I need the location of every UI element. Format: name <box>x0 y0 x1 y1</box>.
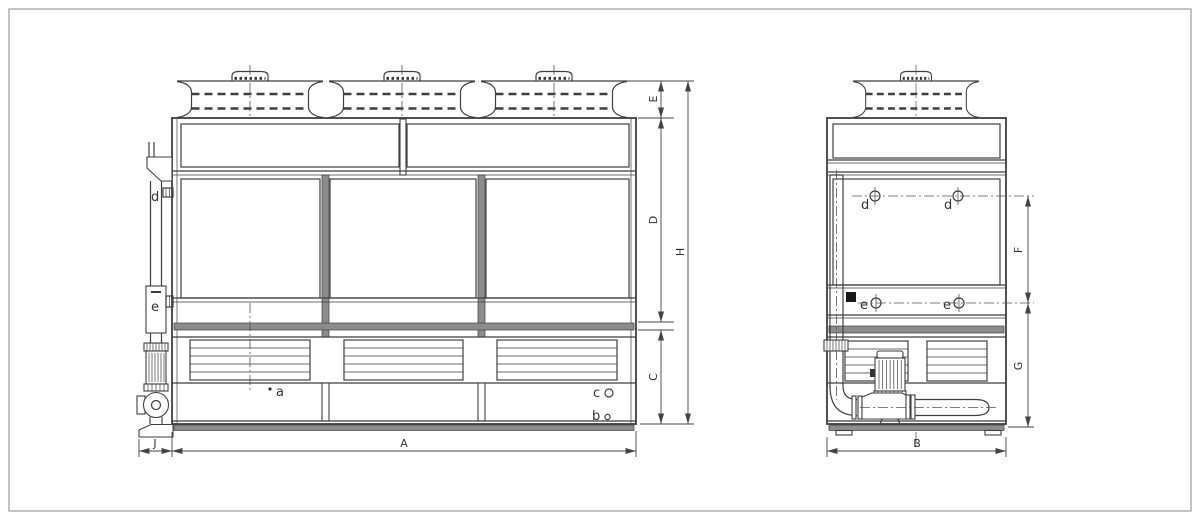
side-connection-d-right-label: d <box>944 198 952 213</box>
dim-label-J: J <box>152 437 156 450</box>
front-connection-d-label: d <box>151 190 159 205</box>
side-connection-d-left-label: d <box>861 198 869 213</box>
dim-label-G: G <box>1012 362 1025 371</box>
front-connection-e-label: e <box>151 300 159 315</box>
dim-label-C: C <box>647 373 660 381</box>
dim-label-D: D <box>647 216 660 224</box>
front-casing <box>172 118 636 424</box>
dim-label-B: B <box>913 437 921 450</box>
front-connection-c-label: c <box>593 386 600 401</box>
base-foot-right <box>985 431 1001 436</box>
front-connection-a-label: a <box>276 385 284 400</box>
base-foot-left <box>836 431 852 436</box>
port-a-mark <box>268 387 271 390</box>
side-connection-e-left-label: e <box>860 298 868 313</box>
pump-volute <box>144 393 169 418</box>
dim-label-H: H <box>674 248 687 256</box>
pump-motor-cap <box>877 351 903 358</box>
dim-label-F: F <box>1012 247 1025 253</box>
dim-label-A: A <box>400 437 408 450</box>
technical-drawing-canvas: a c b d e <box>0 0 1200 520</box>
control-box <box>846 292 856 302</box>
side-view: d d e e <box>824 65 1034 457</box>
side-casing <box>827 118 1006 424</box>
side-connection-e-right-label: e <box>943 298 951 313</box>
pump-volute <box>862 393 910 419</box>
front-view: a c b d e <box>137 65 694 457</box>
front-connection-b-label: b <box>592 409 600 424</box>
dim-label-E: E <box>647 95 660 102</box>
